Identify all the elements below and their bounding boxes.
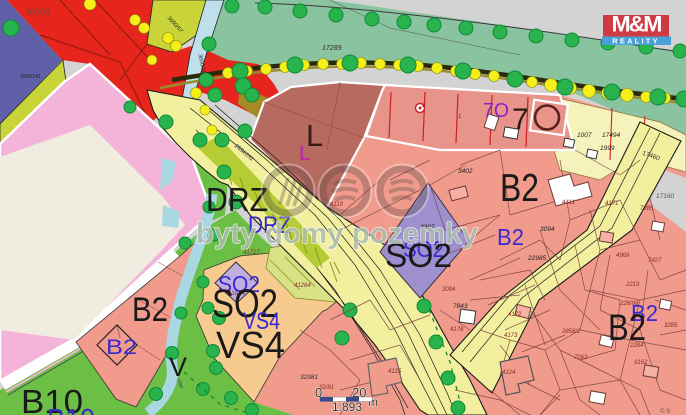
svg-text:4173: 4173	[504, 333, 518, 339]
svg-text:B2: B2	[500, 167, 539, 210]
svg-text:4172: 4172	[508, 312, 522, 318]
svg-text:9162: 9162	[634, 360, 648, 366]
svg-text:L: L	[299, 142, 311, 165]
svg-text:kolo: kolo	[26, 4, 51, 18]
svg-text:4969: 4969	[616, 253, 630, 259]
svg-text:V: V	[169, 352, 187, 382]
svg-text:22985: 22985	[527, 255, 546, 262]
svg-text:2: 2	[421, 103, 426, 109]
svg-text:32981: 32981	[300, 374, 318, 381]
svg-text:1:893: 1:893	[332, 400, 362, 414]
svg-text:1999: 1999	[600, 145, 615, 152]
svg-text:3402: 3402	[458, 168, 473, 175]
svg-text:M&M: M&M	[612, 12, 662, 36]
svg-text:7: 7	[512, 103, 529, 136]
svg-text:41727: 41727	[243, 250, 260, 256]
svg-text:17289: 17289	[322, 45, 342, 52]
svg-text:3094: 3094	[540, 226, 555, 233]
svg-text:VS4: VS4	[216, 325, 285, 367]
svg-text:17494: 17494	[602, 132, 620, 139]
svg-text:7285: 7285	[640, 206, 654, 212]
svg-text:17160: 17160	[656, 193, 674, 200]
svg-text:2858/1: 2858/1	[561, 329, 580, 335]
svg-text:41264: 41264	[294, 283, 311, 289]
svg-text:REALITY: REALITY	[612, 37, 659, 46]
svg-text:3285: 3285	[664, 323, 678, 329]
svg-text:byty domy pozemky: byty domy pozemky	[196, 218, 478, 250]
svg-text:B2: B2	[106, 336, 137, 359]
svg-text:7O: 7O	[483, 100, 509, 122]
svg-text:4124: 4124	[502, 370, 516, 376]
svg-text:1007: 1007	[577, 132, 592, 139]
svg-text:7427: 7427	[648, 258, 662, 264]
svg-text:1: 1	[458, 114, 461, 120]
svg-text:4178: 4178	[450, 327, 464, 333]
svg-text:3094: 3094	[442, 287, 456, 293]
svg-text:2219: 2219	[625, 282, 640, 288]
svg-text:7843: 7843	[453, 303, 468, 310]
svg-text:B2: B2	[608, 307, 646, 348]
svg-text:4411: 4411	[562, 200, 575, 206]
svg-text:B2: B2	[132, 291, 168, 329]
svg-text:1830/141: 1830/141	[20, 74, 41, 80]
svg-text:B2: B2	[497, 224, 524, 250]
svg-text:7063: 7063	[574, 355, 588, 361]
svg-text:4171: 4171	[605, 201, 618, 207]
svg-text:4125: 4125	[388, 369, 402, 375]
svg-text:© S: © S	[660, 408, 670, 415]
svg-text:B10: B10	[47, 404, 95, 415]
